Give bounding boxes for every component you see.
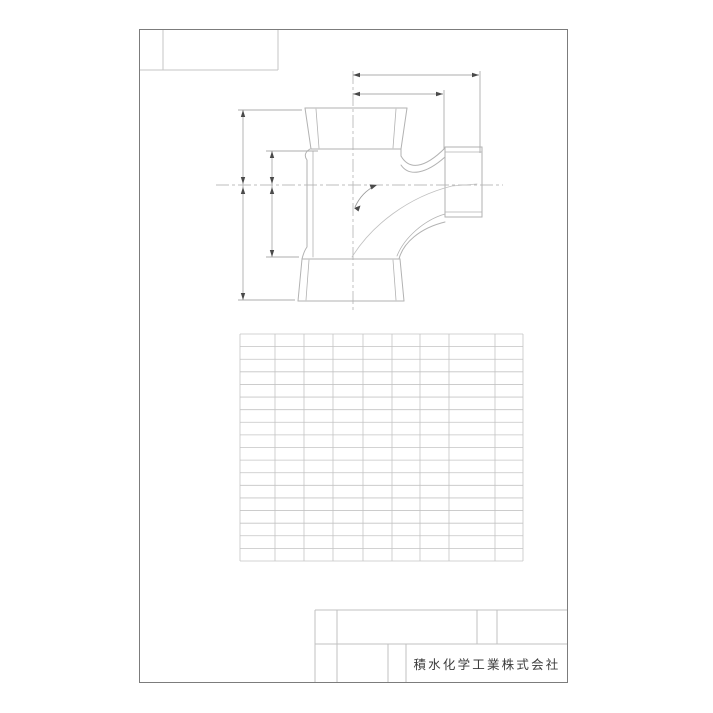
sweep-radius-arc [354, 185, 377, 212]
dimension-arrowheads [241, 73, 479, 300]
fitting-front-view [298, 108, 482, 301]
company-name: 積水化学工業株式会社 [407, 645, 567, 681]
spec-table-grid [240, 334, 523, 561]
dimension-lines [238, 71, 480, 300]
centerlines [216, 71, 503, 311]
drawing-sheet: 積水化学工業株式会社 [0, 0, 713, 713]
corner-reference-block [140, 30, 278, 70]
technical-drawing-canvas [0, 0, 713, 713]
